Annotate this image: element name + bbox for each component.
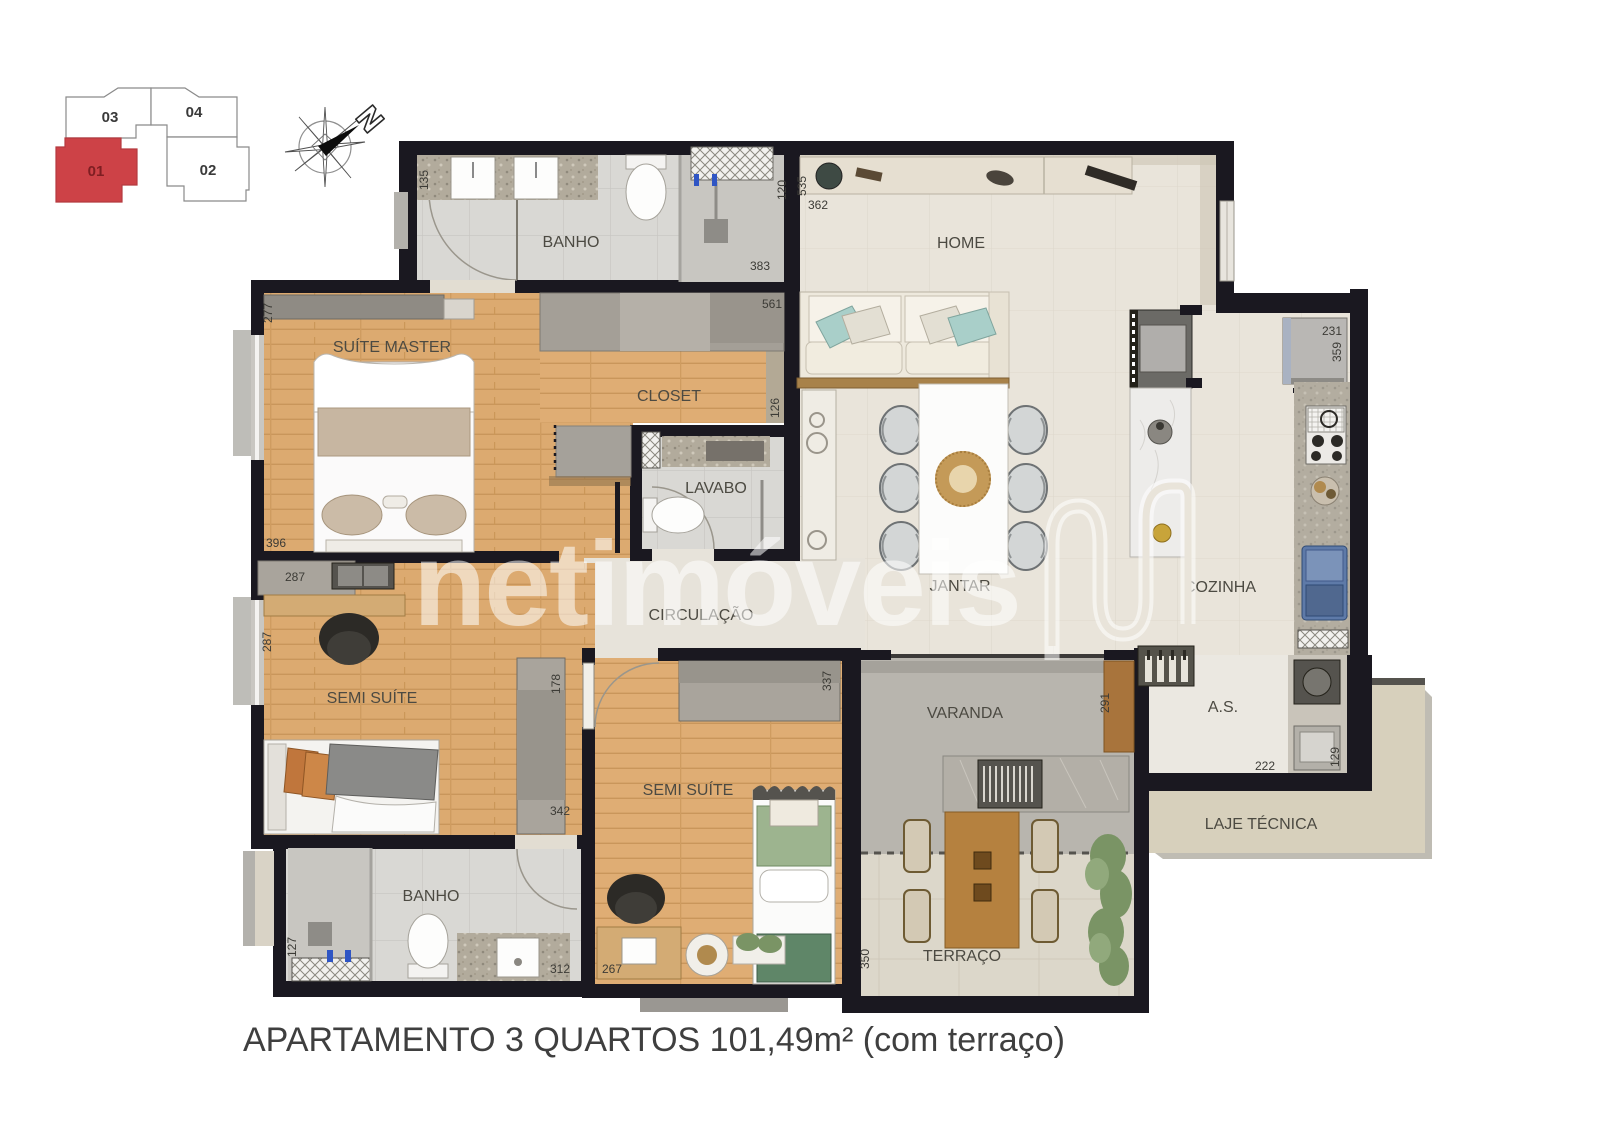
svg-text:VARANDA: VARANDA xyxy=(927,705,1003,722)
svg-text:CLOSET: CLOSET xyxy=(637,388,701,405)
svg-text:267: 267 xyxy=(602,962,622,976)
svg-text:APARTAMENTO 3 QUARTOS 101,49m²: APARTAMENTO 3 QUARTOS 101,49m² (com terr… xyxy=(243,1021,1065,1059)
svg-text:178: 178 xyxy=(549,674,563,694)
svg-text:535: 535 xyxy=(795,176,809,196)
svg-text:126: 126 xyxy=(768,398,782,418)
svg-text:120: 120 xyxy=(775,180,789,200)
svg-text:01: 01 xyxy=(88,163,105,180)
svg-text:337: 337 xyxy=(820,671,834,691)
svg-text:SEMI SUÍTE: SEMI SUÍTE xyxy=(327,688,418,707)
svg-text:342: 342 xyxy=(550,804,570,818)
svg-text:02: 02 xyxy=(200,162,217,179)
svg-text:127: 127 xyxy=(285,937,299,957)
svg-text:291: 291 xyxy=(1098,693,1112,713)
svg-text:SEMI SUÍTE: SEMI SUÍTE xyxy=(643,780,734,799)
svg-text:03: 03 xyxy=(102,109,119,126)
svg-text:396: 396 xyxy=(266,536,286,550)
svg-text:04: 04 xyxy=(186,104,203,121)
svg-text:SUÍTE MASTER: SUÍTE MASTER xyxy=(333,337,451,356)
svg-text:287: 287 xyxy=(285,570,305,584)
svg-text:HOME: HOME xyxy=(937,235,985,252)
svg-text:netimóveis: netimóveis xyxy=(413,517,1020,651)
svg-text:A.S.: A.S. xyxy=(1208,699,1238,716)
svg-text:135: 135 xyxy=(417,170,431,190)
svg-text:312: 312 xyxy=(550,962,570,976)
svg-text:231: 231 xyxy=(1322,324,1342,338)
svg-text:287: 287 xyxy=(260,632,274,652)
svg-text:BANHO: BANHO xyxy=(543,234,600,251)
svg-text:277: 277 xyxy=(261,303,275,323)
svg-text:TERRAÇO: TERRAÇO xyxy=(923,948,1001,965)
svg-text:129: 129 xyxy=(1328,747,1342,767)
svg-text:561: 561 xyxy=(762,297,782,311)
svg-text:BANHO: BANHO xyxy=(403,888,460,905)
svg-text:362: 362 xyxy=(808,198,828,212)
svg-text:222: 222 xyxy=(1255,759,1275,773)
svg-text:LAJE TÉCNICA: LAJE TÉCNICA xyxy=(1205,814,1318,833)
svg-text:383: 383 xyxy=(750,259,770,273)
svg-text:350: 350 xyxy=(858,949,872,969)
svg-text:LAVABO: LAVABO xyxy=(685,480,747,497)
svg-text:359: 359 xyxy=(1330,342,1344,362)
